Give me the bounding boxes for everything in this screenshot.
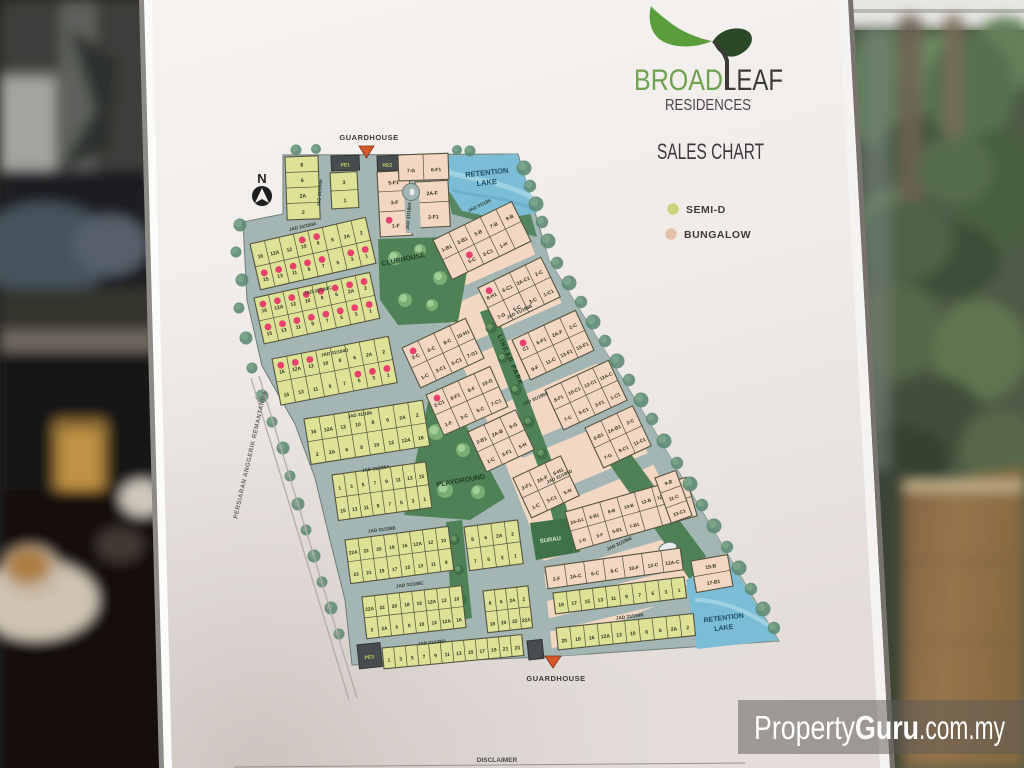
svg-text:18: 18 [490, 621, 496, 628]
svg-text:6-F1: 6-F1 [431, 167, 442, 173]
svg-text:20: 20 [561, 638, 567, 645]
svg-text:13: 13 [597, 597, 603, 604]
svg-text:BROAD: BROAD [634, 64, 723, 97]
svg-text:2A: 2A [671, 626, 678, 633]
svg-text:SEMI-D: SEMI-D [686, 204, 726, 216]
svg-text:8-C: 8-C [610, 568, 619, 575]
svg-text:2-F: 2-F [553, 576, 561, 583]
svg-text:16: 16 [589, 635, 595, 642]
svg-text:23: 23 [514, 645, 520, 652]
svg-text:13: 13 [456, 651, 462, 658]
svg-text:6-C: 6-C [591, 570, 600, 577]
svg-text:22A: 22A [522, 617, 532, 624]
svg-text:12A: 12A [601, 633, 611, 640]
svg-text:22: 22 [379, 605, 385, 612]
svg-text:15: 15 [418, 474, 425, 481]
svg-text:15: 15 [468, 650, 474, 657]
svg-text:2A: 2A [509, 598, 516, 605]
svg-text:GUARDHOUSE: GUARDHOUSE [526, 674, 585, 683]
svg-text:16: 16 [416, 601, 422, 608]
svg-text:11: 11 [611, 596, 617, 603]
svg-text:22: 22 [512, 619, 518, 626]
svg-text:17: 17 [571, 600, 577, 607]
svg-text:PropertyGuru.com.my: PropertyGuru.com.my [754, 709, 1005, 746]
svg-text:3: 3 [342, 180, 345, 186]
svg-text:10: 10 [630, 631, 636, 638]
svg-text:PE1: PE1 [341, 162, 351, 168]
svg-text:1-F: 1-F [392, 223, 400, 229]
svg-text:20: 20 [392, 603, 398, 610]
svg-text:2A: 2A [381, 626, 388, 633]
svg-text:10: 10 [419, 621, 425, 628]
svg-text:11: 11 [444, 652, 450, 659]
svg-text:16: 16 [456, 617, 462, 624]
svg-text:7-G: 7-G [407, 168, 416, 174]
svg-text:12: 12 [441, 598, 447, 605]
svg-text:3-F: 3-F [391, 200, 399, 206]
svg-text:2: 2 [302, 210, 305, 216]
svg-text:DISCLAIMER: DISCLAIMER [477, 757, 518, 764]
svg-text:RE2: RE2 [382, 162, 392, 168]
svg-text:18: 18 [404, 602, 410, 609]
svg-text:19: 19 [558, 602, 564, 609]
svg-text:22A: 22A [349, 549, 359, 556]
svg-text:19: 19 [491, 647, 497, 654]
svg-text:GUARDHOUSE: GUARDHOUSE [339, 133, 398, 142]
svg-text:13: 13 [352, 506, 359, 513]
svg-text:8: 8 [300, 163, 303, 169]
svg-text:12A: 12A [413, 541, 423, 548]
svg-text:11: 11 [395, 477, 401, 484]
svg-text:13: 13 [407, 475, 414, 482]
svg-text:18: 18 [575, 636, 581, 643]
svg-text:11: 11 [363, 505, 369, 512]
svg-text:6: 6 [301, 178, 304, 184]
svg-text:12: 12 [616, 632, 622, 639]
svg-text:SALES CHART: SALES CHART [657, 139, 764, 164]
svg-text:BUNGALOW: BUNGALOW [684, 229, 751, 241]
svg-text:RESIDENCES: RESIDENCES [665, 97, 751, 114]
svg-text:12A: 12A [442, 618, 452, 625]
svg-text:2A: 2A [299, 193, 306, 199]
svg-text:15: 15 [584, 599, 590, 606]
svg-text:12: 12 [431, 620, 437, 627]
svg-text:2A: 2A [496, 533, 504, 540]
svg-text:17: 17 [479, 648, 485, 655]
svg-text:21: 21 [503, 646, 509, 653]
svg-text:LEAF: LEAF [723, 64, 783, 97]
svg-text:2A-F: 2A-F [426, 191, 438, 198]
svg-text:2-F1: 2-F1 [428, 214, 439, 221]
svg-text:PE3: PE3 [364, 654, 374, 661]
svg-text:5-F1: 5-F1 [388, 180, 399, 187]
svg-text:1: 1 [343, 198, 346, 204]
svg-text:N: N [257, 171, 266, 186]
svg-text:12A: 12A [427, 599, 437, 606]
svg-text:20: 20 [501, 620, 507, 627]
svg-text:15: 15 [340, 508, 347, 515]
svg-text:22A: 22A [365, 606, 375, 613]
svg-text:10: 10 [454, 596, 460, 603]
